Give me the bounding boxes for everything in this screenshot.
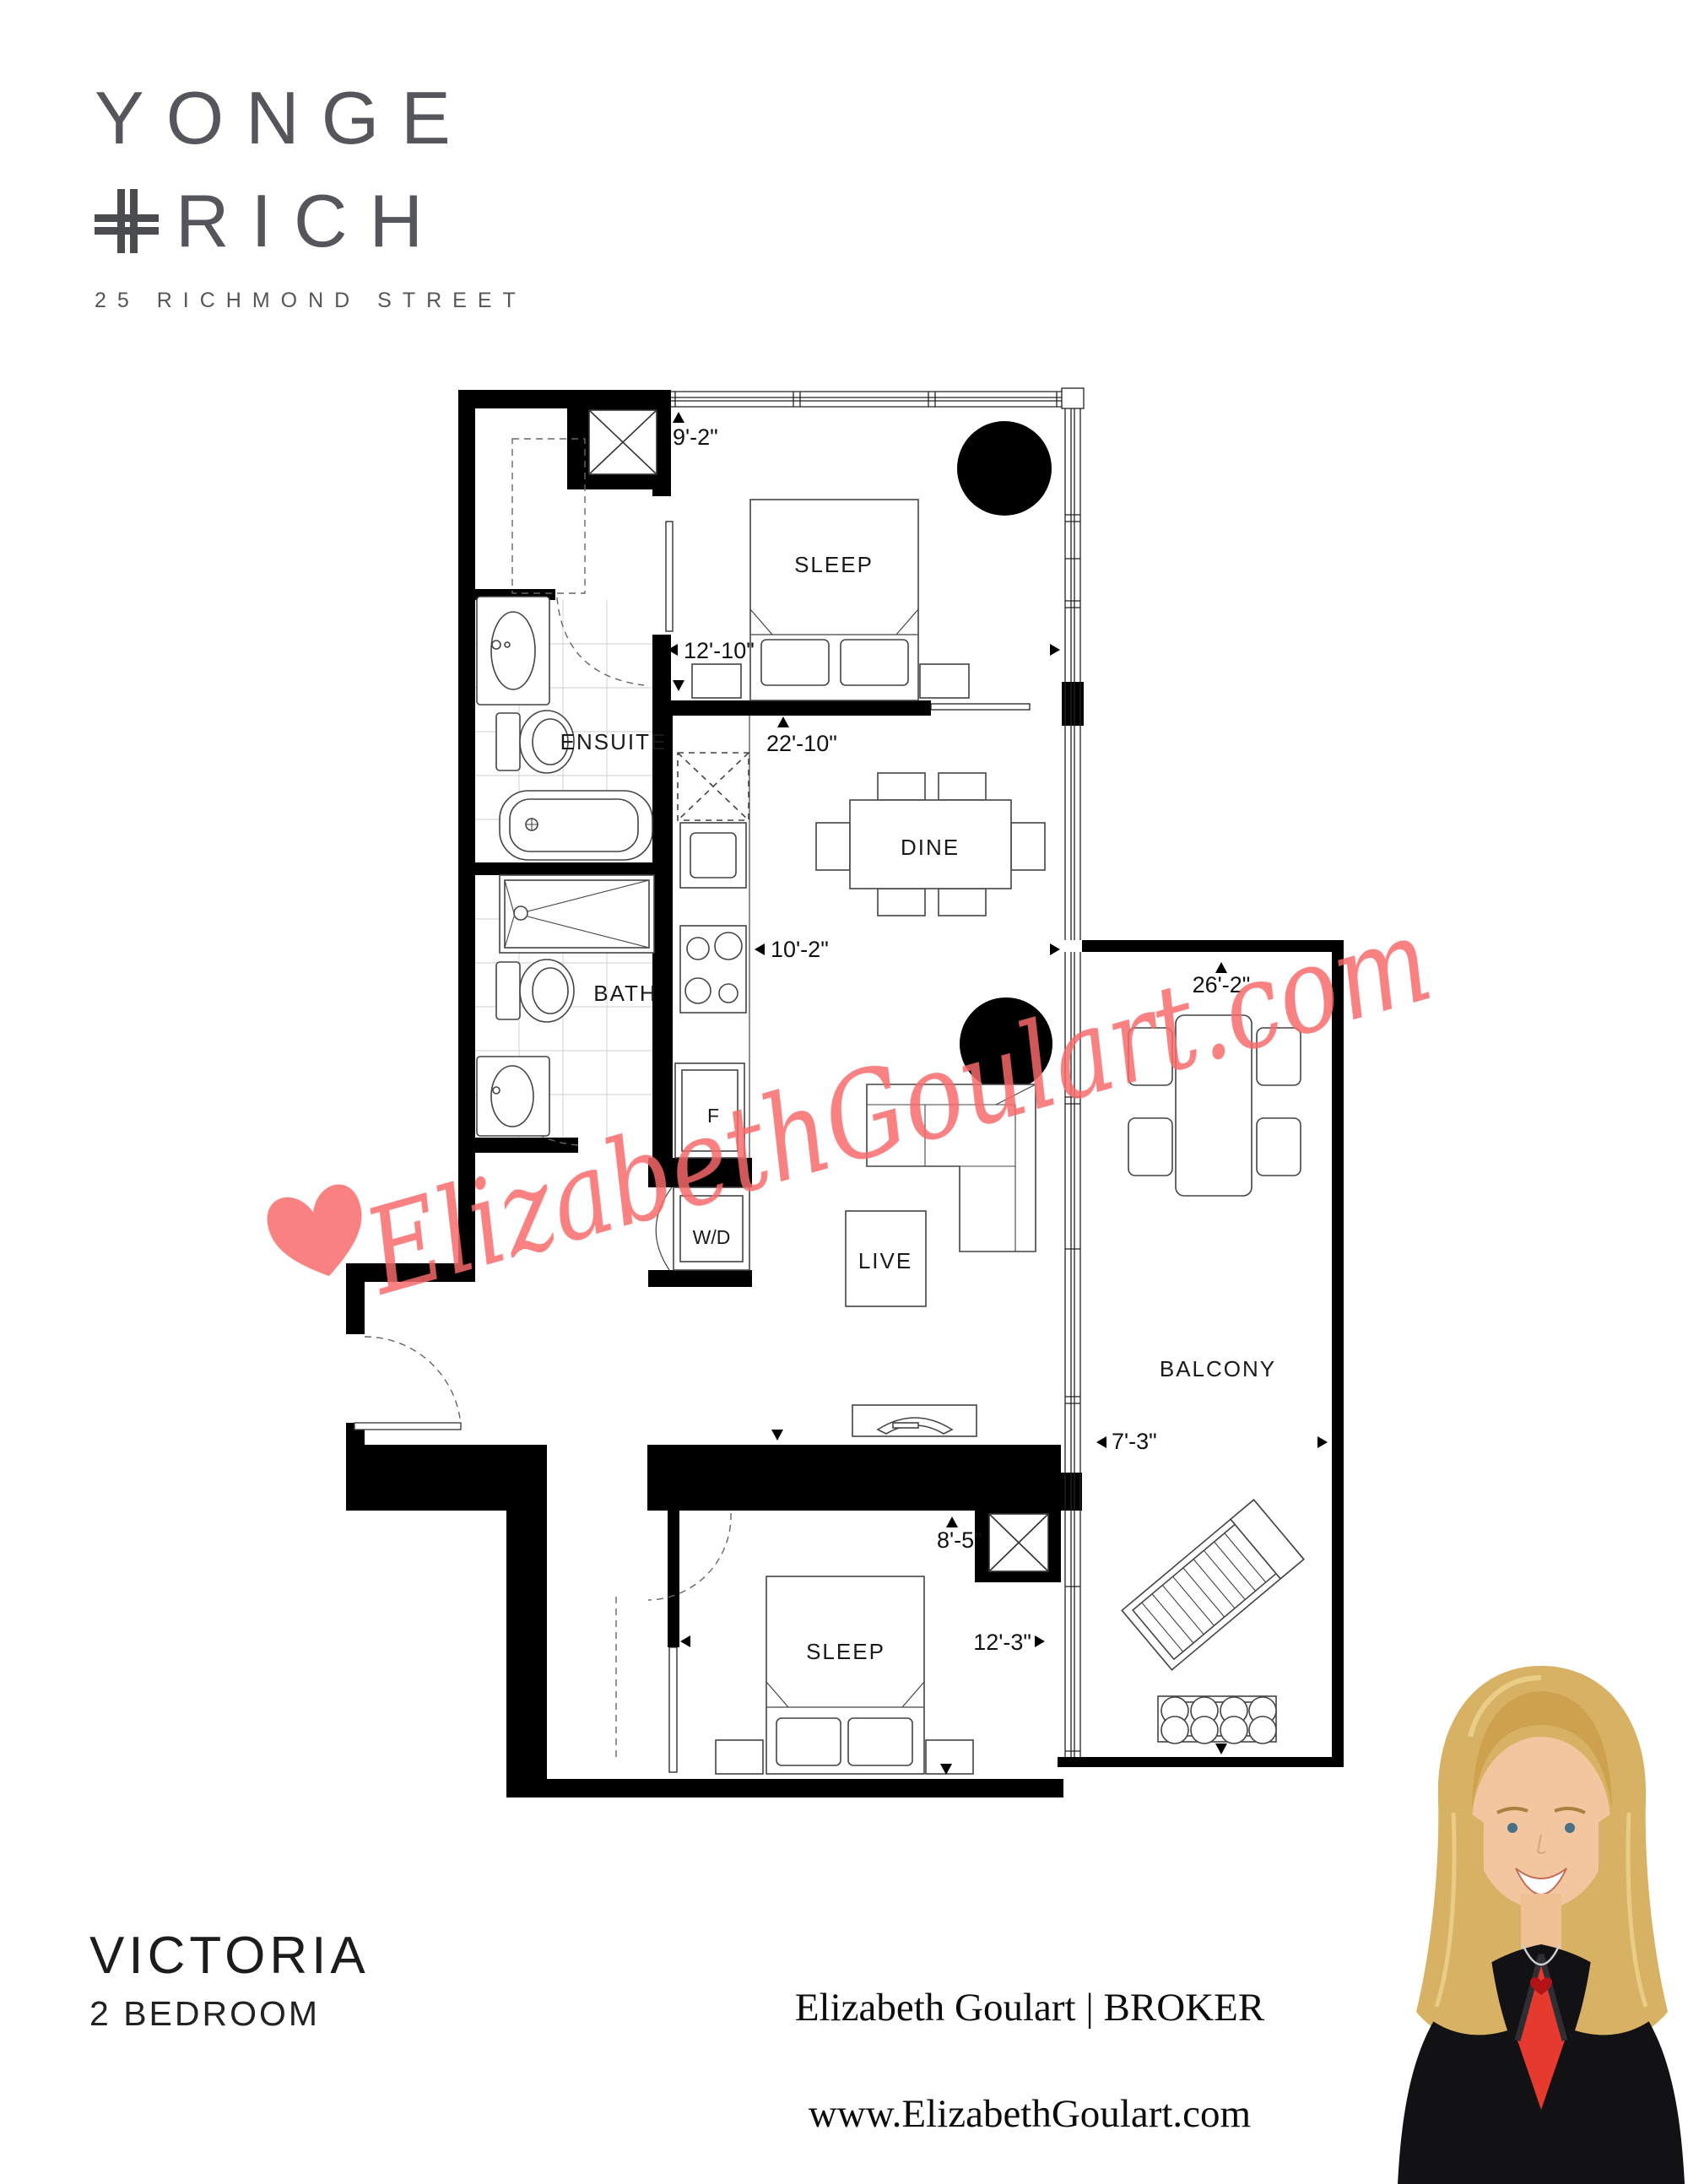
- plus-icon: [95, 189, 159, 253]
- dim-main-width: 10'-2": [771, 937, 829, 962]
- dim-main-length: 22'-10": [766, 731, 837, 756]
- floorplan-drawing: 9'-2" 12'-10" 22'-10" 10'-2" 26'-2" 7'-3…: [0, 0, 1688, 2184]
- room-label-live: LIVE: [858, 1248, 912, 1273]
- room-label-ensuite: ENSUITE: [560, 729, 668, 754]
- broker-photo: [1394, 1644, 1688, 2184]
- dim-balcony-width: 7'-3": [1112, 1429, 1157, 1454]
- unit-type: 2 BEDROOM: [89, 1994, 370, 2034]
- unit-info: VICTORIA 2 BEDROOM: [89, 1926, 370, 2034]
- broker-website: www.ElizabethGoulart.com: [785, 2091, 1274, 2137]
- broker-info: Elizabeth Goulart | BROKER www.Elizabeth…: [785, 1985, 1274, 2137]
- column: [957, 421, 1052, 516]
- logo-name-line1: YONGE: [95, 81, 527, 155]
- entry-door-leaf: [354, 1423, 461, 1430]
- dim-bed1-width: 12'-10": [684, 638, 755, 663]
- room-label-bath: BATH: [593, 981, 657, 1006]
- logo-name-line2: RICH: [176, 184, 445, 258]
- project-logo: YONGE RICH 25 RICHMOND STREET: [95, 81, 527, 313]
- room-label-sleep1: SLEEP: [794, 552, 874, 577]
- dim-bed2-width: 12'-3": [973, 1630, 1031, 1655]
- room-label-sleep2: SLEEP: [806, 1639, 885, 1664]
- dim-bed2-depth: 8'-5": [937, 1527, 982, 1553]
- room-label-balcony: BALCONY: [1160, 1356, 1276, 1381]
- logo-address: 25 RICHMOND STREET: [95, 289, 527, 313]
- dim-bed1-depth: 9'-2": [673, 424, 718, 450]
- unit-name: VICTORIA: [89, 1926, 370, 1986]
- floorplan-sheet: 9'-2" 12'-10" 22'-10" 10'-2" 26'-2" 7'-3…: [0, 0, 1688, 2184]
- broker-name-title: Elizabeth Goulart | BROKER: [785, 1985, 1274, 2030]
- room-label-dine: DINE: [901, 835, 960, 860]
